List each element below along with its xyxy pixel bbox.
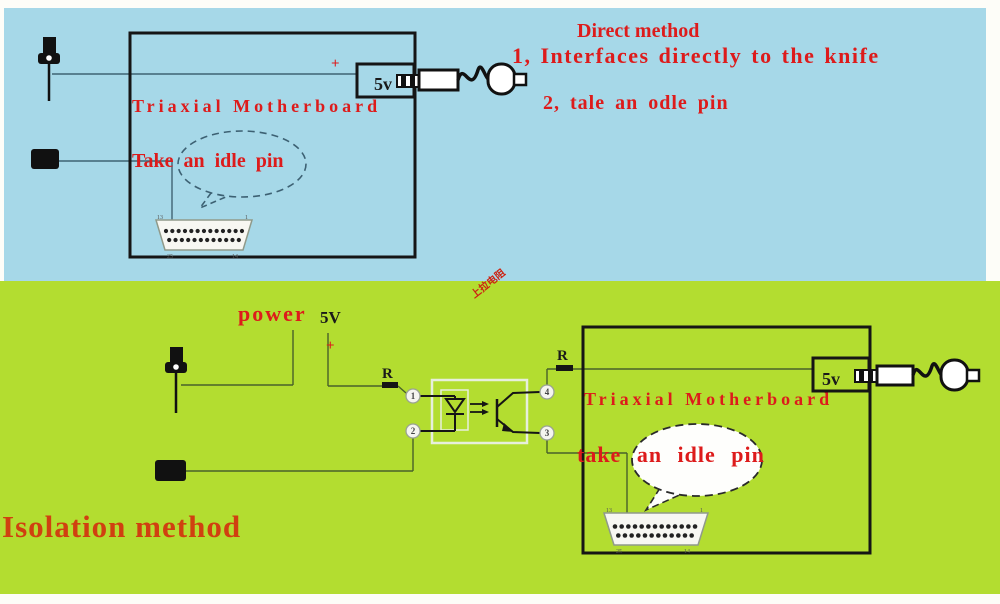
terminal-block-icon-bottom	[155, 460, 186, 481]
opto-pin-2: 2	[406, 424, 420, 438]
psu-5v-label-top: 5v	[374, 74, 392, 94]
power-label: power	[238, 303, 307, 325]
db25-connector-icon-top: 13 1 25 14	[156, 215, 252, 260]
opto-pin-1: 1	[406, 389, 420, 403]
plus-mark-top: +	[331, 56, 340, 72]
v5-label: 5V	[320, 309, 341, 326]
power-plug-icon-bottom	[855, 360, 979, 390]
direct-method-title: Direct method	[577, 21, 699, 41]
opto-pin-3: 3	[540, 426, 554, 440]
svg-text:1: 1	[245, 215, 248, 221]
svg-text:1: 1	[411, 391, 416, 401]
plus-mark-bottom: +	[326, 338, 335, 354]
svg-text:14: 14	[684, 549, 690, 555]
db25-connector-icon-bottom: 13 1 25 14	[604, 508, 708, 555]
probe-icon-bottom	[165, 347, 187, 413]
motherboard-label-top: Triaxial Motherboard	[132, 97, 381, 115]
speech-bubble-bottom	[632, 424, 762, 510]
direct-note-1: 1, Interfaces directly to the knife	[512, 45, 880, 67]
svg-text:4: 4	[545, 387, 550, 397]
svg-text:25: 25	[167, 254, 173, 260]
opto-pin-4: 4	[540, 385, 554, 399]
resistor-label-left: R	[382, 366, 393, 382]
direct-note-2: 2, tale an odle pin	[543, 93, 729, 113]
bubble-label-bottom: take an idle pin	[577, 444, 765, 466]
svg-text:3: 3	[545, 428, 550, 438]
svg-text:13: 13	[157, 215, 163, 221]
probe-icon-top	[38, 37, 60, 101]
svg-text:2: 2	[411, 426, 416, 436]
diagram-stage: 1 2 4 3 13 1 25 14	[0, 0, 1000, 604]
resistor-bar-left	[382, 382, 398, 388]
terminal-block-icon-top	[31, 149, 59, 169]
isolation-method-title: Isolation method	[2, 511, 241, 542]
motherboard-label-bottom: Triaxial Motherboard	[584, 390, 833, 408]
svg-text:13: 13	[606, 508, 612, 514]
resistor-label-right: R	[557, 348, 568, 364]
resistor-bar-right	[556, 365, 573, 371]
optocoupler-icon: 1 2 4 3	[406, 380, 554, 443]
svg-text:25: 25	[616, 549, 622, 555]
bubble-label-top: Take an idle pin	[132, 151, 284, 171]
svg-text:1: 1	[700, 508, 703, 514]
psu-5v-label-bottom: 5v	[822, 369, 840, 389]
svg-text:14: 14	[232, 254, 238, 260]
